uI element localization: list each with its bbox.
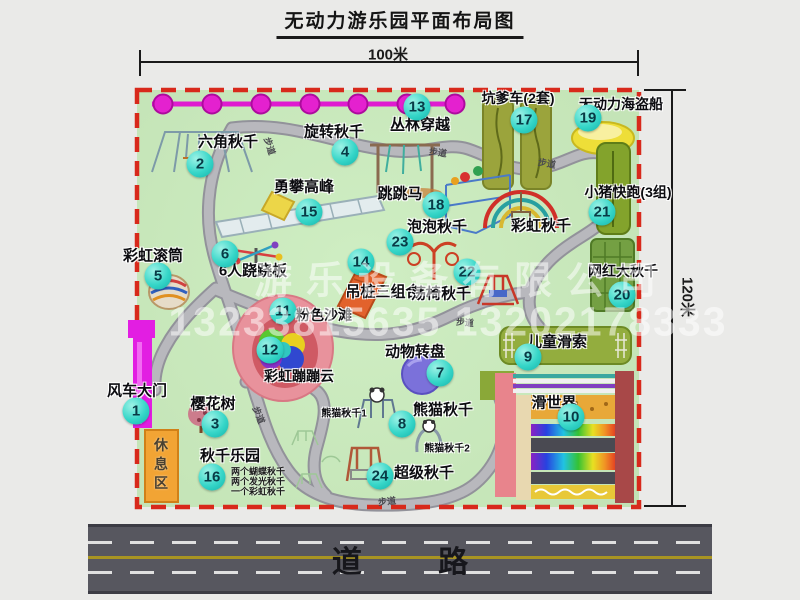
jungle-zipline-icon xyxy=(152,95,465,114)
windmill-gate-icon xyxy=(128,320,155,428)
dimension-width-label: 100米 xyxy=(368,44,408,65)
park-layout-plan: 无动力游乐园平面布局图 xyxy=(0,0,800,600)
climbing-peak-icon xyxy=(216,192,384,237)
rest-area-icon xyxy=(145,430,178,502)
hexagon-swing-icon xyxy=(152,132,252,172)
watermark-phone: 13233815635 13202178333 xyxy=(168,299,727,346)
pit-cars-icon xyxy=(483,99,551,189)
super-swing-icon xyxy=(347,448,383,481)
panda-swing-icon xyxy=(358,388,441,453)
watermark-company: 游乐设备有限公司 xyxy=(254,250,670,305)
road-label: 道 路 xyxy=(298,537,502,581)
road: 道 路 xyxy=(88,524,712,594)
slide-world-icon xyxy=(480,371,634,503)
cherry-tree-icon xyxy=(188,402,212,433)
animal-carousel-icon xyxy=(402,354,442,394)
piggy-run-icon xyxy=(597,143,630,234)
